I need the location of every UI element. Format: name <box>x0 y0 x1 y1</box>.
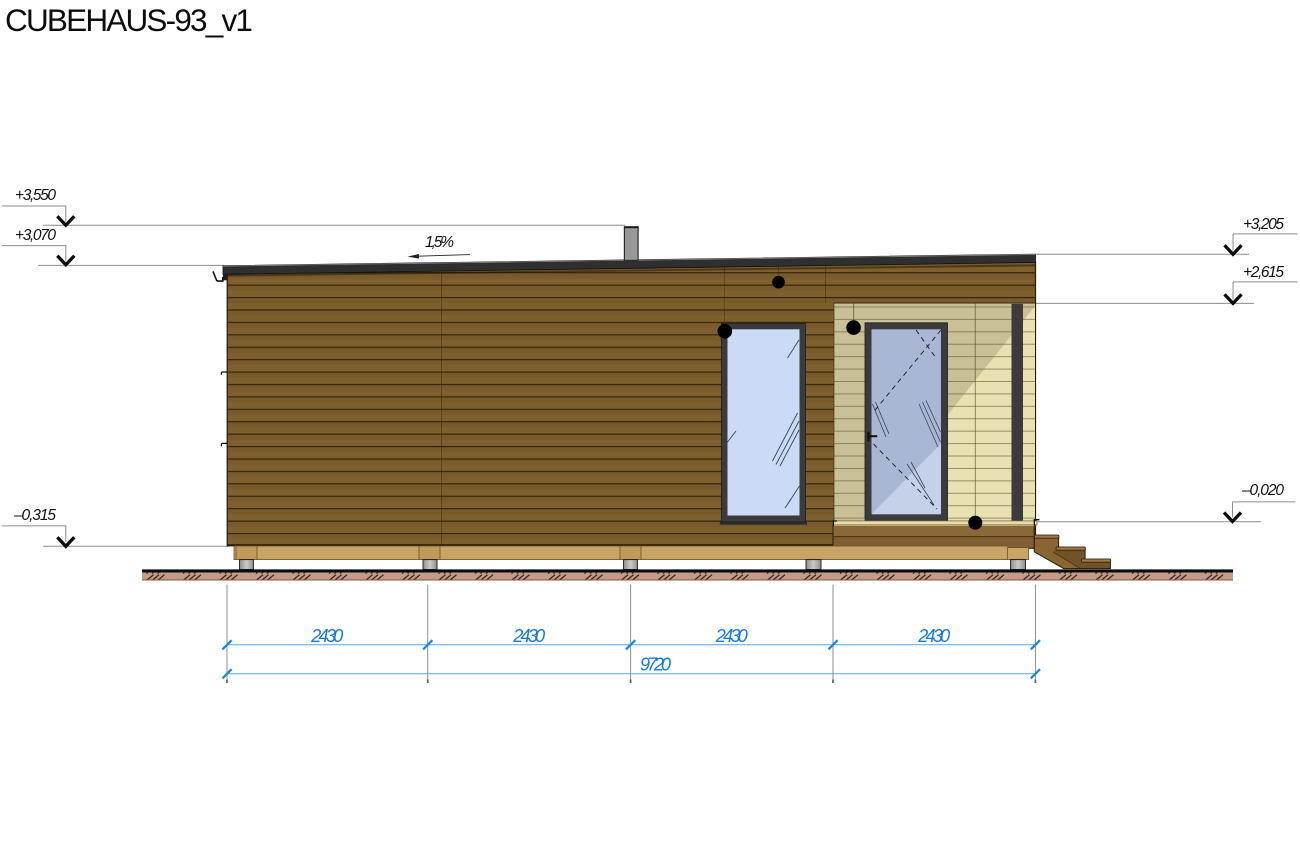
svg-text:+3,205: +3,205 <box>1243 216 1284 233</box>
svg-text:2430: 2430 <box>715 626 748 646</box>
svg-text:CUBEHAUS-93_v1: CUBEHAUS-93_v1 <box>5 2 251 38</box>
svg-text:2430: 2430 <box>512 626 545 646</box>
svg-text:2430: 2430 <box>917 626 950 646</box>
svg-text:2430: 2430 <box>310 626 343 646</box>
svg-text:+2,615: +2,615 <box>1243 264 1284 281</box>
svg-text:–0,315: –0,315 <box>13 507 56 524</box>
svg-text:+3,550: +3,550 <box>15 187 56 204</box>
svg-text:–0,020: –0,020 <box>1241 482 1284 499</box>
svg-text:1,5%: 1,5% <box>425 234 454 251</box>
svg-text:+3,070: +3,070 <box>15 227 56 244</box>
svg-text:9720: 9720 <box>640 655 671 675</box>
